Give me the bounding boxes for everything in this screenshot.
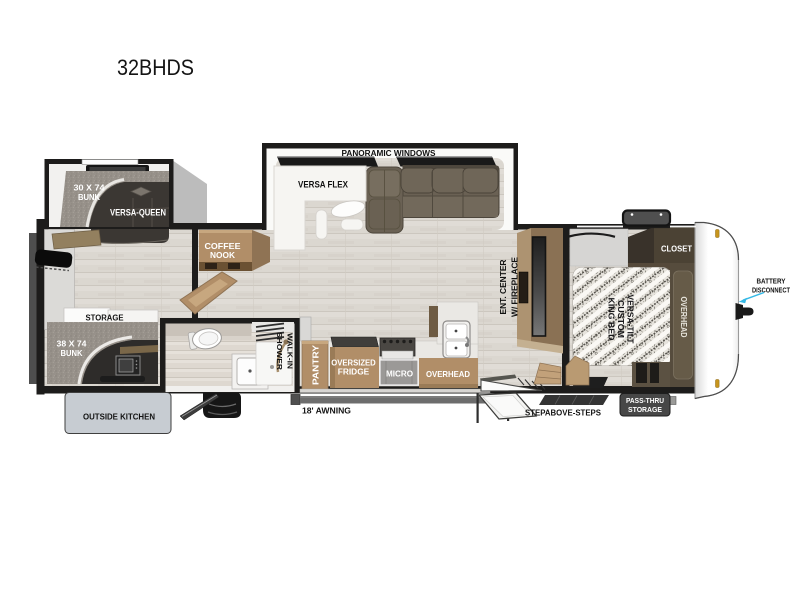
svg-text:32BHDS: 32BHDS [117, 55, 194, 80]
svg-text:BUNK: BUNK [78, 192, 100, 202]
svg-text:SHOWER: SHOWER [275, 332, 284, 370]
svg-text:OVERHEAD: OVERHEAD [679, 297, 688, 338]
svg-text:PANORAMIC WINDOWS: PANORAMIC WINDOWS [342, 148, 436, 158]
svg-text:VERSA FLEX: VERSA FLEX [298, 179, 348, 189]
svg-text:CLOSET: CLOSET [661, 243, 693, 253]
svg-text:30 X 74: 30 X 74 [74, 182, 105, 192]
svg-text:18' AWNING: 18' AWNING [302, 405, 351, 415]
svg-text:MICRO: MICRO [386, 369, 413, 378]
svg-text:PANTRY: PANTRY [311, 345, 321, 385]
svg-text:WALK-IN: WALK-IN [285, 333, 294, 369]
svg-text:VERSA-TILT: VERSA-TILT [626, 295, 636, 345]
svg-text:DISCONNECT: DISCONNECT [752, 285, 790, 294]
svg-text:STORAGE: STORAGE [628, 405, 662, 414]
svg-text:BUNK: BUNK [61, 348, 83, 358]
svg-text:ENT. CENTER: ENT. CENTER [498, 260, 508, 315]
svg-text:VERSA-QUEEN: VERSA-QUEEN [110, 207, 166, 217]
svg-text:W/ FIREPLACE: W/ FIREPLACE [510, 257, 520, 317]
svg-text:BATTERY: BATTERY [757, 276, 786, 285]
svg-text:OVERSIZED: OVERSIZED [331, 359, 376, 368]
svg-text:STORAGE: STORAGE [86, 313, 125, 322]
svg-text:NOOK: NOOK [210, 250, 235, 260]
svg-text:STEPABOVE-STEPS: STEPABOVE-STEPS [525, 408, 602, 417]
svg-text:38 X 74: 38 X 74 [57, 338, 87, 348]
svg-text:PASS-THRU: PASS-THRU [626, 396, 664, 405]
svg-text:CUSTOM: CUSTOM [616, 300, 626, 338]
svg-text:OUTSIDE KITCHEN: OUTSIDE KITCHEN [83, 411, 155, 421]
svg-text:FRIDGE: FRIDGE [338, 368, 370, 377]
svg-text:KING BED: KING BED [606, 298, 616, 341]
svg-text:OVERHEAD: OVERHEAD [426, 369, 470, 379]
